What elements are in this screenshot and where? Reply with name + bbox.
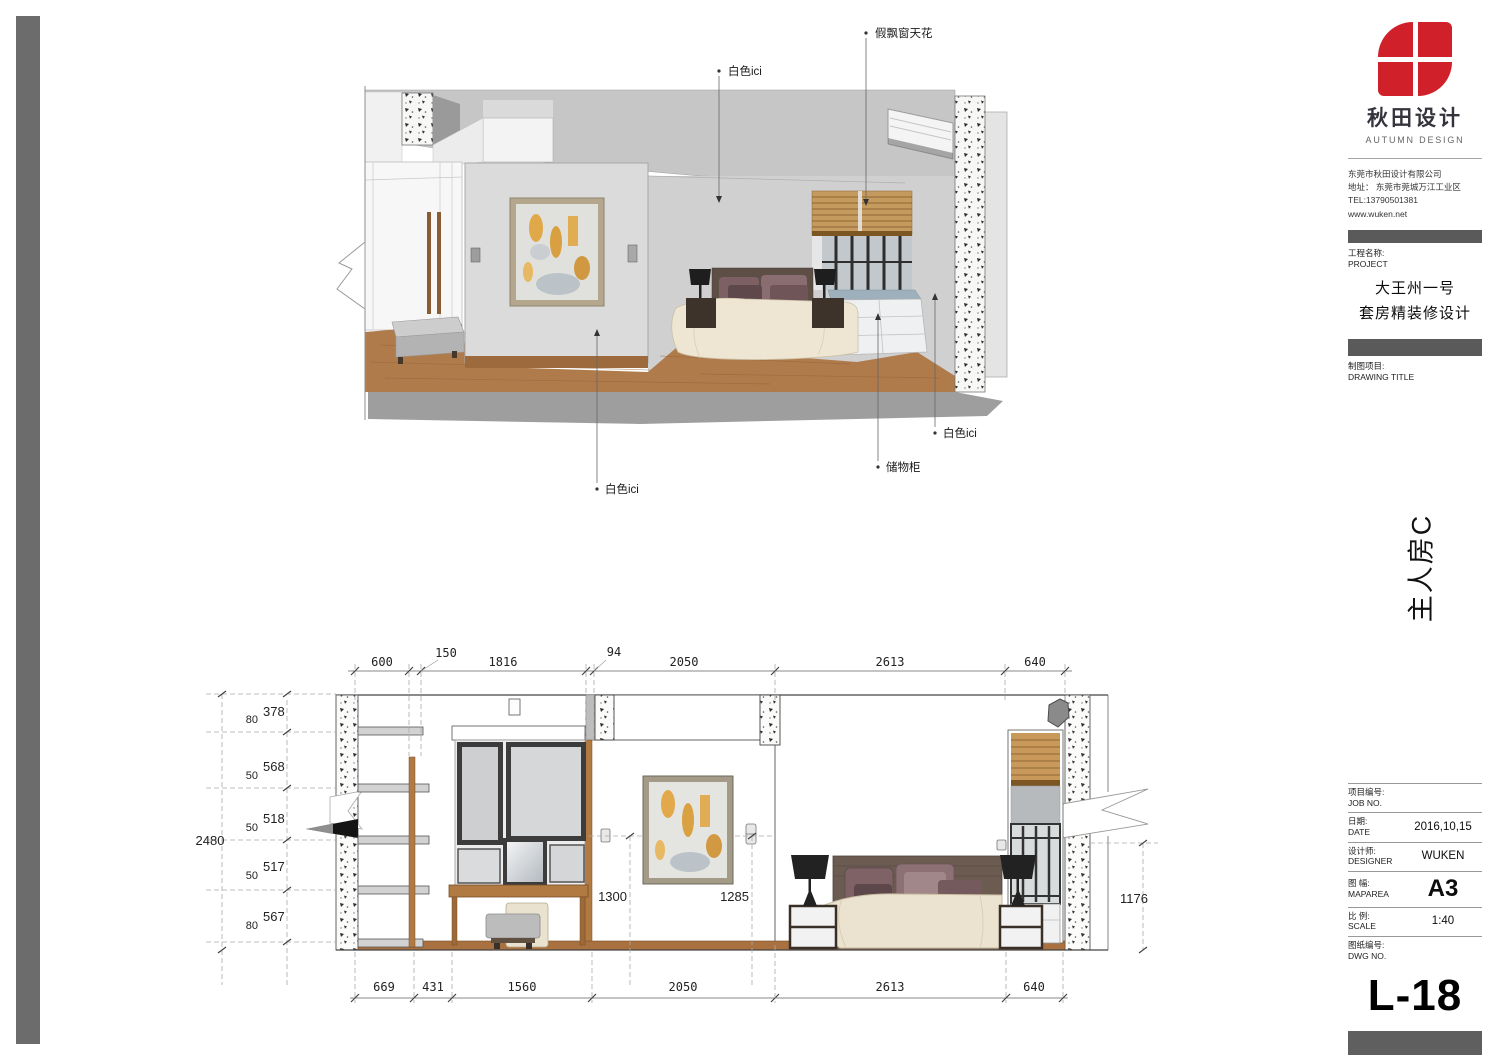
dim-left-568: 568 [263, 759, 285, 774]
dim-left-50a: 50 [246, 770, 258, 782]
logo-quadrant-br [1418, 62, 1453, 97]
project-name-line1: 大王州一号 [1348, 277, 1482, 302]
dim-bottom-669: 669 [373, 980, 395, 994]
annotation-white-ici-top: 白色ici [728, 64, 762, 78]
dim-left-80a: 80 [246, 714, 258, 726]
logo-name-en: AUTUMN DESIGN [1348, 135, 1482, 145]
annotation-white-ici-left: 白色ici [605, 482, 639, 496]
dim-top-94: 94 [607, 645, 621, 659]
dim-total-height: 2480 [196, 833, 225, 848]
field-date: 日期: DATE 2016,10,15 [1348, 812, 1482, 841]
dim-left-518: 518 [263, 811, 285, 826]
designer-value: WUKEN [1404, 850, 1482, 862]
annotation-storage-cabinet: 储物柜 [886, 460, 921, 474]
dwg-no-label-cn: 图纸编号: [1348, 940, 1404, 951]
dim-left-567: 567 [263, 909, 285, 924]
title-block-fields: 项目编号: JOB NO. 日期: DATE 2016,10,15 设计师: D… [1348, 783, 1482, 1055]
scale-label-cn: 比 例: [1348, 911, 1404, 922]
dim-1176: 1176 [1120, 891, 1148, 906]
dim-left-517: 517 [263, 859, 285, 874]
drawing-title-label-en: DRAWING TITLE [1348, 372, 1482, 383]
dim-bottom-640: 640 [1023, 980, 1045, 994]
job-no-label-cn: 项目编号: [1348, 787, 1404, 798]
scale-value: 1:40 [1404, 915, 1482, 927]
annotation-white-ici-right: 白色ici [943, 426, 977, 440]
designer-label-en: DESIGNER [1348, 856, 1404, 867]
dim-bottom-1560: 1560 [508, 980, 537, 994]
field-designer: 设计师: DESIGNER WUKEN [1348, 842, 1482, 871]
dim-top-1816: 1816 [489, 655, 518, 669]
title-block-end-bar [1348, 1031, 1482, 1055]
drawing-title-label-cn: 制图项目: [1348, 361, 1482, 372]
designer-label-cn: 设计师: [1348, 846, 1404, 857]
date-label-cn: 日期: [1348, 816, 1404, 827]
company-logo [1378, 22, 1452, 96]
project-name-line2: 套房精装修设计 [1348, 302, 1482, 327]
logo-quadrant-tr [1418, 22, 1453, 57]
dim-1285: 1285 [720, 889, 749, 904]
field-maparea: 图 幅: MAPAREA A3 [1348, 871, 1482, 907]
date-label-en: DATE [1348, 827, 1404, 838]
dim-bottom-2613: 2613 [876, 980, 905, 994]
field-dwg-no: 图纸编号: DWG NO. [1348, 936, 1482, 965]
dim-1300: 1300 [598, 889, 627, 904]
section-bar [1348, 339, 1482, 356]
project-label-cn: 工程名称: [1348, 248, 1482, 259]
section-bar [1348, 230, 1482, 243]
dim-left-378: 378 [263, 704, 285, 719]
dim-left-50b: 50 [246, 822, 258, 834]
dim-left-50c: 50 [246, 870, 258, 882]
drawing-sheet: 假飘窗天花 白色ici 白色ici 储物柜 白色ici [0, 0, 1500, 1060]
project-label-en: PROJECT [1348, 259, 1482, 270]
maparea-value: A3 [1404, 875, 1482, 903]
company-name: 东莞市秋田设计有限公司 [1348, 168, 1482, 181]
elevation-view: 600 150 1816 94 2050 2613 640 669 431 15… [185, 640, 1170, 1030]
sheet-binding-bar [16, 16, 40, 1044]
room-name-label: 主人房C [1400, 514, 1439, 623]
perspective-view: 假飘窗天花 白色ici 白色ici 储物柜 白色ici [335, 20, 1015, 500]
dim-left-80b: 80 [246, 920, 258, 932]
field-scale: 比 例: SCALE 1:40 [1348, 907, 1482, 936]
perspective-room [337, 86, 1007, 424]
date-value: 2016,10,15 [1404, 821, 1482, 833]
company-address: 地址： 东莞市莞城万江工业区 [1348, 181, 1482, 194]
dim-bottom-2050: 2050 [669, 980, 698, 994]
dim-top-150: 150 [435, 646, 457, 660]
company-tel: TEL:13790501381 [1348, 194, 1482, 207]
company-info: 东莞市秋田设计有限公司 地址： 东莞市莞城万江工业区 TEL:137905013… [1348, 168, 1482, 221]
maparea-label-en: MAPAREA [1348, 889, 1404, 900]
annotation-fake-bay-ceiling: 假飘窗天花 [875, 26, 933, 40]
maparea-label-cn: 图 幅: [1348, 878, 1404, 889]
dim-bottom-431: 431 [422, 980, 444, 994]
dim-top-640: 640 [1024, 655, 1046, 669]
scale-label-en: SCALE [1348, 921, 1404, 932]
divider [1348, 158, 1482, 159]
dwg-no-label-en: DWG NO. [1348, 951, 1404, 962]
logo-name-cn: 秋田设计 [1348, 102, 1482, 132]
company-web: www.wuken.net [1348, 208, 1482, 221]
dim-top-2050: 2050 [670, 655, 699, 669]
title-block: 秋田设计 AUTUMN DESIGN 东莞市秋田设计有限公司 地址： 东莞市莞城… [1348, 14, 1482, 383]
job-no-label-en: JOB NO. [1348, 798, 1404, 809]
dwg-no-value: L-18 [1348, 971, 1482, 1021]
dim-top-600: 600 [371, 655, 393, 669]
dim-top-2613: 2613 [876, 655, 905, 669]
logo-quadrant-bl [1378, 62, 1413, 97]
field-job-no: 项目编号: JOB NO. [1348, 783, 1482, 812]
logo-quadrant-tl [1378, 22, 1413, 57]
view-break-arrow [337, 242, 365, 309]
